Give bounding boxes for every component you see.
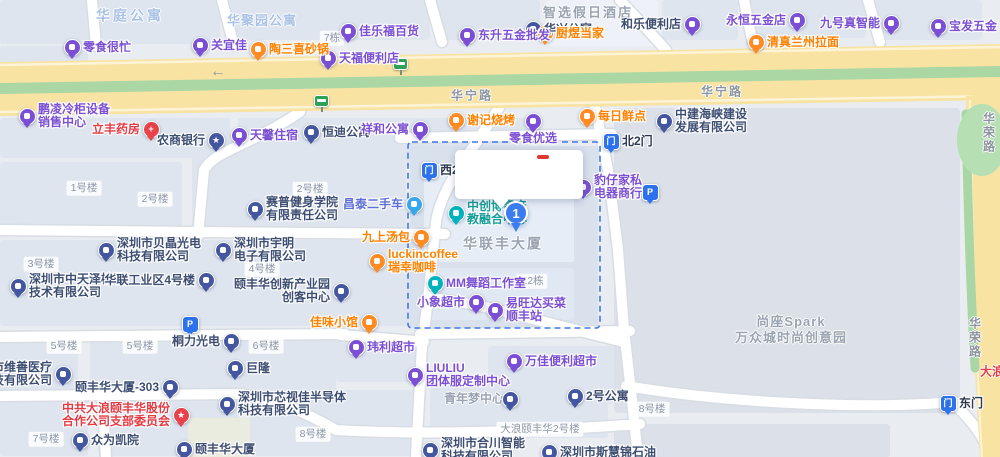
huarong-road-label-b: 华荣路 xyxy=(967,317,982,359)
yuming-electronics-pin-icon[interactable] xyxy=(215,242,232,259)
xiaoxiang-market-pin-icon[interactable] xyxy=(468,294,485,311)
badge-1haolou: 1号楼 xyxy=(67,181,102,196)
hechuan-smart-tech-pin-glyph xyxy=(427,447,433,453)
rural-commercial-bank-pin-glyph: ★ xyxy=(212,136,220,145)
xinshijia-semiconductor-label[interactable]: 深圳市芯视佳半导体科技有限公司 xyxy=(238,391,346,417)
mm-dance-studio-pin-icon[interactable] xyxy=(427,275,444,292)
jiawei-restaurant-pin-icon[interactable] xyxy=(361,314,378,331)
jiawei-restaurant-label[interactable]: 佳味小馆 xyxy=(310,316,358,329)
bus-stop-b-icon[interactable] xyxy=(314,95,329,107)
road-direction-arrow-icon: ← xyxy=(210,63,226,81)
poi-layer: 零食很忙关宜佳陶三喜砂锅天福便利店佳乐福百货华兴公寓东升五金批发厨煜当家和乐便利… xyxy=(0,0,1000,457)
zhongjian-haixia-pin-glyph xyxy=(661,118,667,124)
lingshi-henmang-pin-icon[interactable] xyxy=(64,39,81,56)
luckin-coffee-pin-icon[interactable] xyxy=(369,253,386,270)
liuliu-uniform-label[interactable]: LIULIU团体服定制中心 xyxy=(426,362,510,388)
yifenghua-tower-label[interactable]: 颐丰华大厦 xyxy=(195,443,255,456)
changtai-used-cars-pin-glyph xyxy=(411,201,417,207)
party-committee-pin-glyph: ★ xyxy=(177,411,185,420)
yuming-electronics-label[interactable]: 深圳市宇明电子有限公司 xyxy=(234,237,306,263)
rural-commercial-bank-pin-icon[interactable]: ★ xyxy=(208,132,225,149)
lingshi-youxuan-label[interactable]: 零食优选 xyxy=(509,132,557,145)
youth-dream-center: 青年梦中心 xyxy=(444,392,504,407)
taosanxi-shaguo-pin-icon[interactable] xyxy=(250,41,267,58)
badge-dalang-2haolou: 大浪颐丰华2号楼 xyxy=(496,422,583,437)
badge-3haolou: 3号楼 xyxy=(24,257,59,272)
lanzhou-noodles-pin-icon[interactable] xyxy=(748,34,765,51)
yiwangda-sf-station-label[interactable]: 易旺达买菜顺丰站 xyxy=(506,297,566,323)
yifenghua-innovation-park-label[interactable]: 颐丰华创新产业园创客中心 xyxy=(234,278,330,304)
yifenghua-innovation-park-pin-icon[interactable] xyxy=(333,283,350,300)
jiuhao-smart-pin-icon[interactable] xyxy=(883,15,900,32)
hele-store-pin-glyph xyxy=(689,21,695,27)
yifenghua-303-label[interactable]: 颐丰华大厦-303 xyxy=(75,381,159,394)
badge-7haolou: 7号楼 xyxy=(29,432,64,447)
tianfu-store-pin-glyph xyxy=(325,55,331,61)
unlabeled-company-pin-icon[interactable] xyxy=(502,391,519,408)
guanyijia-label[interactable]: 关宜佳 xyxy=(211,39,247,52)
xieji-bbq-pin-icon[interactable] xyxy=(448,112,465,129)
tongli-optoelectronics-label[interactable]: 桐力光电 xyxy=(172,335,220,348)
parking-east-pin-glyph: P xyxy=(647,188,653,197)
tianfu-store-label[interactable]: 天福便利店 xyxy=(339,52,399,65)
yiwangda-sf-station-pin-glyph xyxy=(492,307,498,313)
xinshijia-semiconductor-pin-icon[interactable] xyxy=(219,396,236,413)
hualian-industrial-4-pin-glyph xyxy=(203,277,209,283)
hualianfeng-tower-label: 华联丰大厦 xyxy=(463,236,543,253)
hengdi-apartment-pin-icon[interactable] xyxy=(303,124,320,141)
holiday-inn-express-label: 智选假日酒店 xyxy=(543,5,633,21)
weili-market-label[interactable]: 玮利超市 xyxy=(367,341,415,354)
jialefu-store-label[interactable]: 佳乐福百货 xyxy=(359,25,419,38)
baofa-hardware-pin-icon[interactable] xyxy=(930,18,947,35)
weishan-medical-pin-icon[interactable] xyxy=(55,366,72,383)
weili-market-pin-glyph xyxy=(353,344,359,350)
tongli-optoelectronics-pin-icon[interactable] xyxy=(223,333,240,350)
saipu-fitness-label[interactable]: 赛普健身学院有限责任公司 xyxy=(266,196,338,222)
parking-west-pin-glyph: P xyxy=(187,320,193,329)
yongheng-hardware-pin-icon[interactable] xyxy=(789,12,806,29)
north-gate-2-label[interactable]: 北2门 xyxy=(622,135,653,148)
mm-dance-studio-pin-glyph xyxy=(432,280,438,286)
rural-commercial-bank-label[interactable]: 农商银行 xyxy=(157,134,205,147)
pengling-refrigeration-pin-icon[interactable] xyxy=(19,108,36,125)
apartment-2-pin-glyph xyxy=(572,393,578,399)
changtai-used-cars-pin-icon[interactable] xyxy=(406,196,423,213)
beijing-optoelectronics-label[interactable]: 深圳市贝晶光电科技有限公司 xyxy=(117,237,201,263)
badge-8haolou-b: 8号楼 xyxy=(296,427,331,442)
info-callout[interactable] xyxy=(455,150,583,199)
sihuijin-oil-label[interactable]: 深圳市斯慧锦石油 xyxy=(560,446,656,457)
saipu-fitness-pin-glyph xyxy=(252,206,258,212)
east-gate-label[interactable]: 东门 xyxy=(959,397,983,410)
lingshi-youxuan-pin-icon[interactable] xyxy=(525,113,542,130)
party-committee-label[interactable]: 中共大浪颐丰华股份合作公司支部委员会 xyxy=(62,402,170,428)
tianxin-lodging-pin-glyph xyxy=(236,132,242,138)
lingshi-henmang-pin-glyph xyxy=(69,44,75,50)
saipu-fitness-pin-icon[interactable] xyxy=(247,201,264,218)
julong-pin-glyph xyxy=(232,365,238,371)
lingshi-youxuan-pin-glyph xyxy=(530,118,536,124)
liuliu-uniform-pin-glyph xyxy=(412,372,418,378)
east-gate-pin-glyph: 门 xyxy=(943,399,952,408)
spark-park-label: 尚座Spark万众城时尚创意园 xyxy=(735,314,847,346)
baozai-furniture-label[interactable]: 豹仔家私电器商行 xyxy=(594,174,642,200)
dongsheng-hardware-pin-icon[interactable] xyxy=(459,27,476,44)
baofa-hardware-label[interactable]: 宝发五金 xyxy=(949,20,997,33)
wanjia-store-pin-glyph xyxy=(511,358,517,364)
julong-pin-icon[interactable] xyxy=(227,360,244,377)
badge-5haolou-b: 5号楼 xyxy=(123,339,158,354)
xianghe-apartment-pin-glyph xyxy=(417,126,423,132)
tianxin-lodging-label[interactable]: 天馨住宿 xyxy=(250,129,298,142)
lifeng-pharmacy-pin-glyph: + xyxy=(148,125,153,134)
yongheng-hardware-pin-glyph xyxy=(794,17,800,23)
huajuyuan-apartment-label: 华聚园公寓 xyxy=(227,13,297,29)
huaning-road-label-a: 华宁路 xyxy=(451,89,493,104)
beijing-optoelectronics-pin-icon[interactable] xyxy=(98,242,115,259)
yifenghua-tower-pin-icon[interactable] xyxy=(176,441,193,457)
tongli-optoelectronics-pin-glyph xyxy=(228,338,234,344)
callout-red-dash xyxy=(537,155,549,159)
lifeng-pharmacy-label[interactable]: 立丰药房 xyxy=(92,123,140,136)
liuliu-uniform-pin-icon[interactable] xyxy=(407,367,424,384)
jiushang-tangbao-label[interactable]: 九上汤包 xyxy=(362,231,410,244)
jiuhao-smart-label[interactable]: 九号真智能 xyxy=(820,17,880,30)
north-gate-2-pin-glyph: 门 xyxy=(606,137,615,146)
unlabeled-company-pin-glyph xyxy=(507,396,513,402)
badge-6haolou: 6号楼 xyxy=(249,339,284,354)
badge-8haolou-a: 8号楼 xyxy=(635,402,670,417)
lingshi-henmang-label[interactable]: 零食很忙 xyxy=(83,41,131,54)
xiaoxiang-market-label[interactable]: 小象超市 xyxy=(417,296,465,309)
badge-4haolou: 4号楼 xyxy=(245,262,280,277)
pengling-refrigeration-pin-glyph xyxy=(24,113,30,119)
hele-store-pin-icon[interactable] xyxy=(684,16,701,33)
mm-dance-studio-label[interactable]: MM舞蹈工作室 xyxy=(446,277,526,290)
xiaoxiang-market-pin-glyph xyxy=(473,299,479,305)
xinshijia-semiconductor-pin-glyph xyxy=(224,401,230,407)
selected-result-marker[interactable]: 1 xyxy=(504,201,528,225)
zhongwei-pin-icon[interactable] xyxy=(72,432,89,449)
wanjia-store-label[interactable]: 万佳便利超市 xyxy=(525,355,597,368)
dongsheng-hardware-label[interactable]: 东升五金批发 xyxy=(478,29,550,42)
party-committee-pin-icon[interactable]: ★ xyxy=(173,407,190,424)
luckin-coffee-pin-glyph xyxy=(374,258,380,264)
dongsheng-hardware-pin-glyph xyxy=(464,32,470,38)
apartment-2-pin-icon[interactable] xyxy=(567,388,584,405)
zhongchuang-center-pin-glyph xyxy=(453,210,459,216)
zhongtianze-testing-pin-glyph xyxy=(15,283,21,289)
zhongwei-pin-glyph xyxy=(77,437,83,443)
hechuan-smart-tech-label[interactable]: 深圳市合川智能科技有限公司 xyxy=(441,437,525,457)
dalang-road-partial-label: 大浪 xyxy=(980,365,1000,380)
parking-east-pin-icon[interactable]: P xyxy=(642,184,659,201)
sihuijin-oil-pin-icon[interactable] xyxy=(541,444,558,457)
yifenghua-303-pin-icon[interactable] xyxy=(162,379,179,396)
yifenghua-tower-pin-glyph xyxy=(181,446,187,452)
huaning-road-label-b: 华宁路 xyxy=(701,85,743,100)
baofa-hardware-pin-glyph xyxy=(935,23,941,29)
map-viewport[interactable]: 零食很忙关宜佳陶三喜砂锅天福便利店佳乐福百货华兴公寓东升五金批发厨煜当家和乐便利… xyxy=(0,0,1000,457)
zhongchuang-center-pin-icon[interactable] xyxy=(448,205,465,222)
hele-store-label[interactable]: 和乐便利店 xyxy=(621,18,681,31)
jiuhao-smart-pin-glyph xyxy=(888,20,894,26)
huating-apartment-label: 华庭公寓 xyxy=(96,8,164,25)
lanzhou-noodles-pin-glyph xyxy=(753,39,759,45)
hengdi-apartment-pin-glyph xyxy=(308,129,314,135)
east-gate-pin-icon[interactable]: 门 xyxy=(940,395,957,412)
xieji-bbq-label[interactable]: 谢记烧烤 xyxy=(467,114,515,127)
taosanxi-shaguo-pin-glyph xyxy=(255,46,261,52)
jialefu-store-pin-glyph xyxy=(345,28,351,34)
taosanxi-shaguo-label[interactable]: 陶三喜砂锅 xyxy=(269,43,329,56)
lanzhou-noodles-label[interactable]: 清真兰州拉面 xyxy=(767,36,839,49)
west-gate-2-pin-icon[interactable]: 门 xyxy=(421,162,438,179)
badge-5haolou-a: 5号楼 xyxy=(47,339,82,354)
guanyijia-pin-glyph xyxy=(197,42,203,48)
zhongjian-haixia-label[interactable]: 中建海峡建设发展有限公司 xyxy=(675,108,747,134)
hechuan-smart-tech-pin-icon[interactable] xyxy=(422,442,439,457)
weili-market-pin-icon[interactable] xyxy=(348,339,365,356)
huarong-road-label-a: 华荣路 xyxy=(981,112,996,154)
zhongtianze-testing-pin-icon[interactable] xyxy=(10,278,27,295)
jiushang-tangbao-pin-icon[interactable] xyxy=(413,229,430,246)
yongheng-hardware-label[interactable]: 永恒五金店 xyxy=(726,14,786,27)
xianghe-apartment-pin-icon[interactable] xyxy=(412,121,429,138)
jiushang-tangbao-pin-glyph xyxy=(418,234,424,240)
weishan-medical-pin-glyph xyxy=(60,371,66,377)
xieji-bbq-pin-glyph xyxy=(453,117,459,123)
beijing-optoelectronics-pin-glyph xyxy=(103,247,109,253)
north-gate-2-pin-icon[interactable]: 门 xyxy=(603,133,620,150)
parking-west-pin-icon[interactable]: P xyxy=(182,316,199,333)
sihuijin-oil-pin-glyph xyxy=(546,449,552,455)
guanyijia-pin-icon[interactable] xyxy=(192,37,209,54)
yifenghua-303-pin-glyph xyxy=(167,384,173,390)
luckin-coffee-label[interactable]: luckincoffee瑞幸咖啡 xyxy=(388,248,458,274)
weishan-medical-label[interactable]: 深圳市维善医疗科技有限公司 xyxy=(0,361,52,387)
zhongjian-haixia-pin-icon[interactable] xyxy=(656,113,673,130)
zhongwei-label[interactable]: 众为凯院 xyxy=(91,434,139,447)
hualian-industrial-4-label[interactable]: 华联工业区4号楼 xyxy=(104,274,195,287)
yuming-electronics-pin-glyph xyxy=(220,247,226,253)
jiawei-restaurant-pin-glyph xyxy=(366,319,372,325)
changtai-used-cars-label[interactable]: 昌泰二手车 xyxy=(343,198,403,211)
meiri-xiandian-pin-glyph xyxy=(584,113,590,119)
yiwangda-sf-station-pin-icon[interactable] xyxy=(487,302,504,319)
julong-label[interactable]: 巨隆 xyxy=(246,362,270,375)
west-gate-2-pin-glyph: 门 xyxy=(424,166,433,175)
jialefu-store-pin-icon[interactable] xyxy=(340,23,357,40)
meiri-xiandian-pin-icon[interactable] xyxy=(579,108,596,125)
chuyu-dangjia-label[interactable]: 厨煜当家 xyxy=(556,27,604,40)
tianxin-lodging-pin-icon[interactable] xyxy=(231,127,248,144)
hualian-industrial-4-pin-icon[interactable] xyxy=(198,272,215,289)
xianghe-apartment-label[interactable]: 祥和公寓 xyxy=(361,123,409,136)
yifenghua-innovation-park-pin-glyph xyxy=(338,288,344,294)
apartment-2-label[interactable]: 2号公寓 xyxy=(586,390,629,403)
meiri-xiandian-label[interactable]: 每日鲜点 xyxy=(598,110,646,123)
badge-2haolou-a: 2号楼 xyxy=(138,192,173,207)
